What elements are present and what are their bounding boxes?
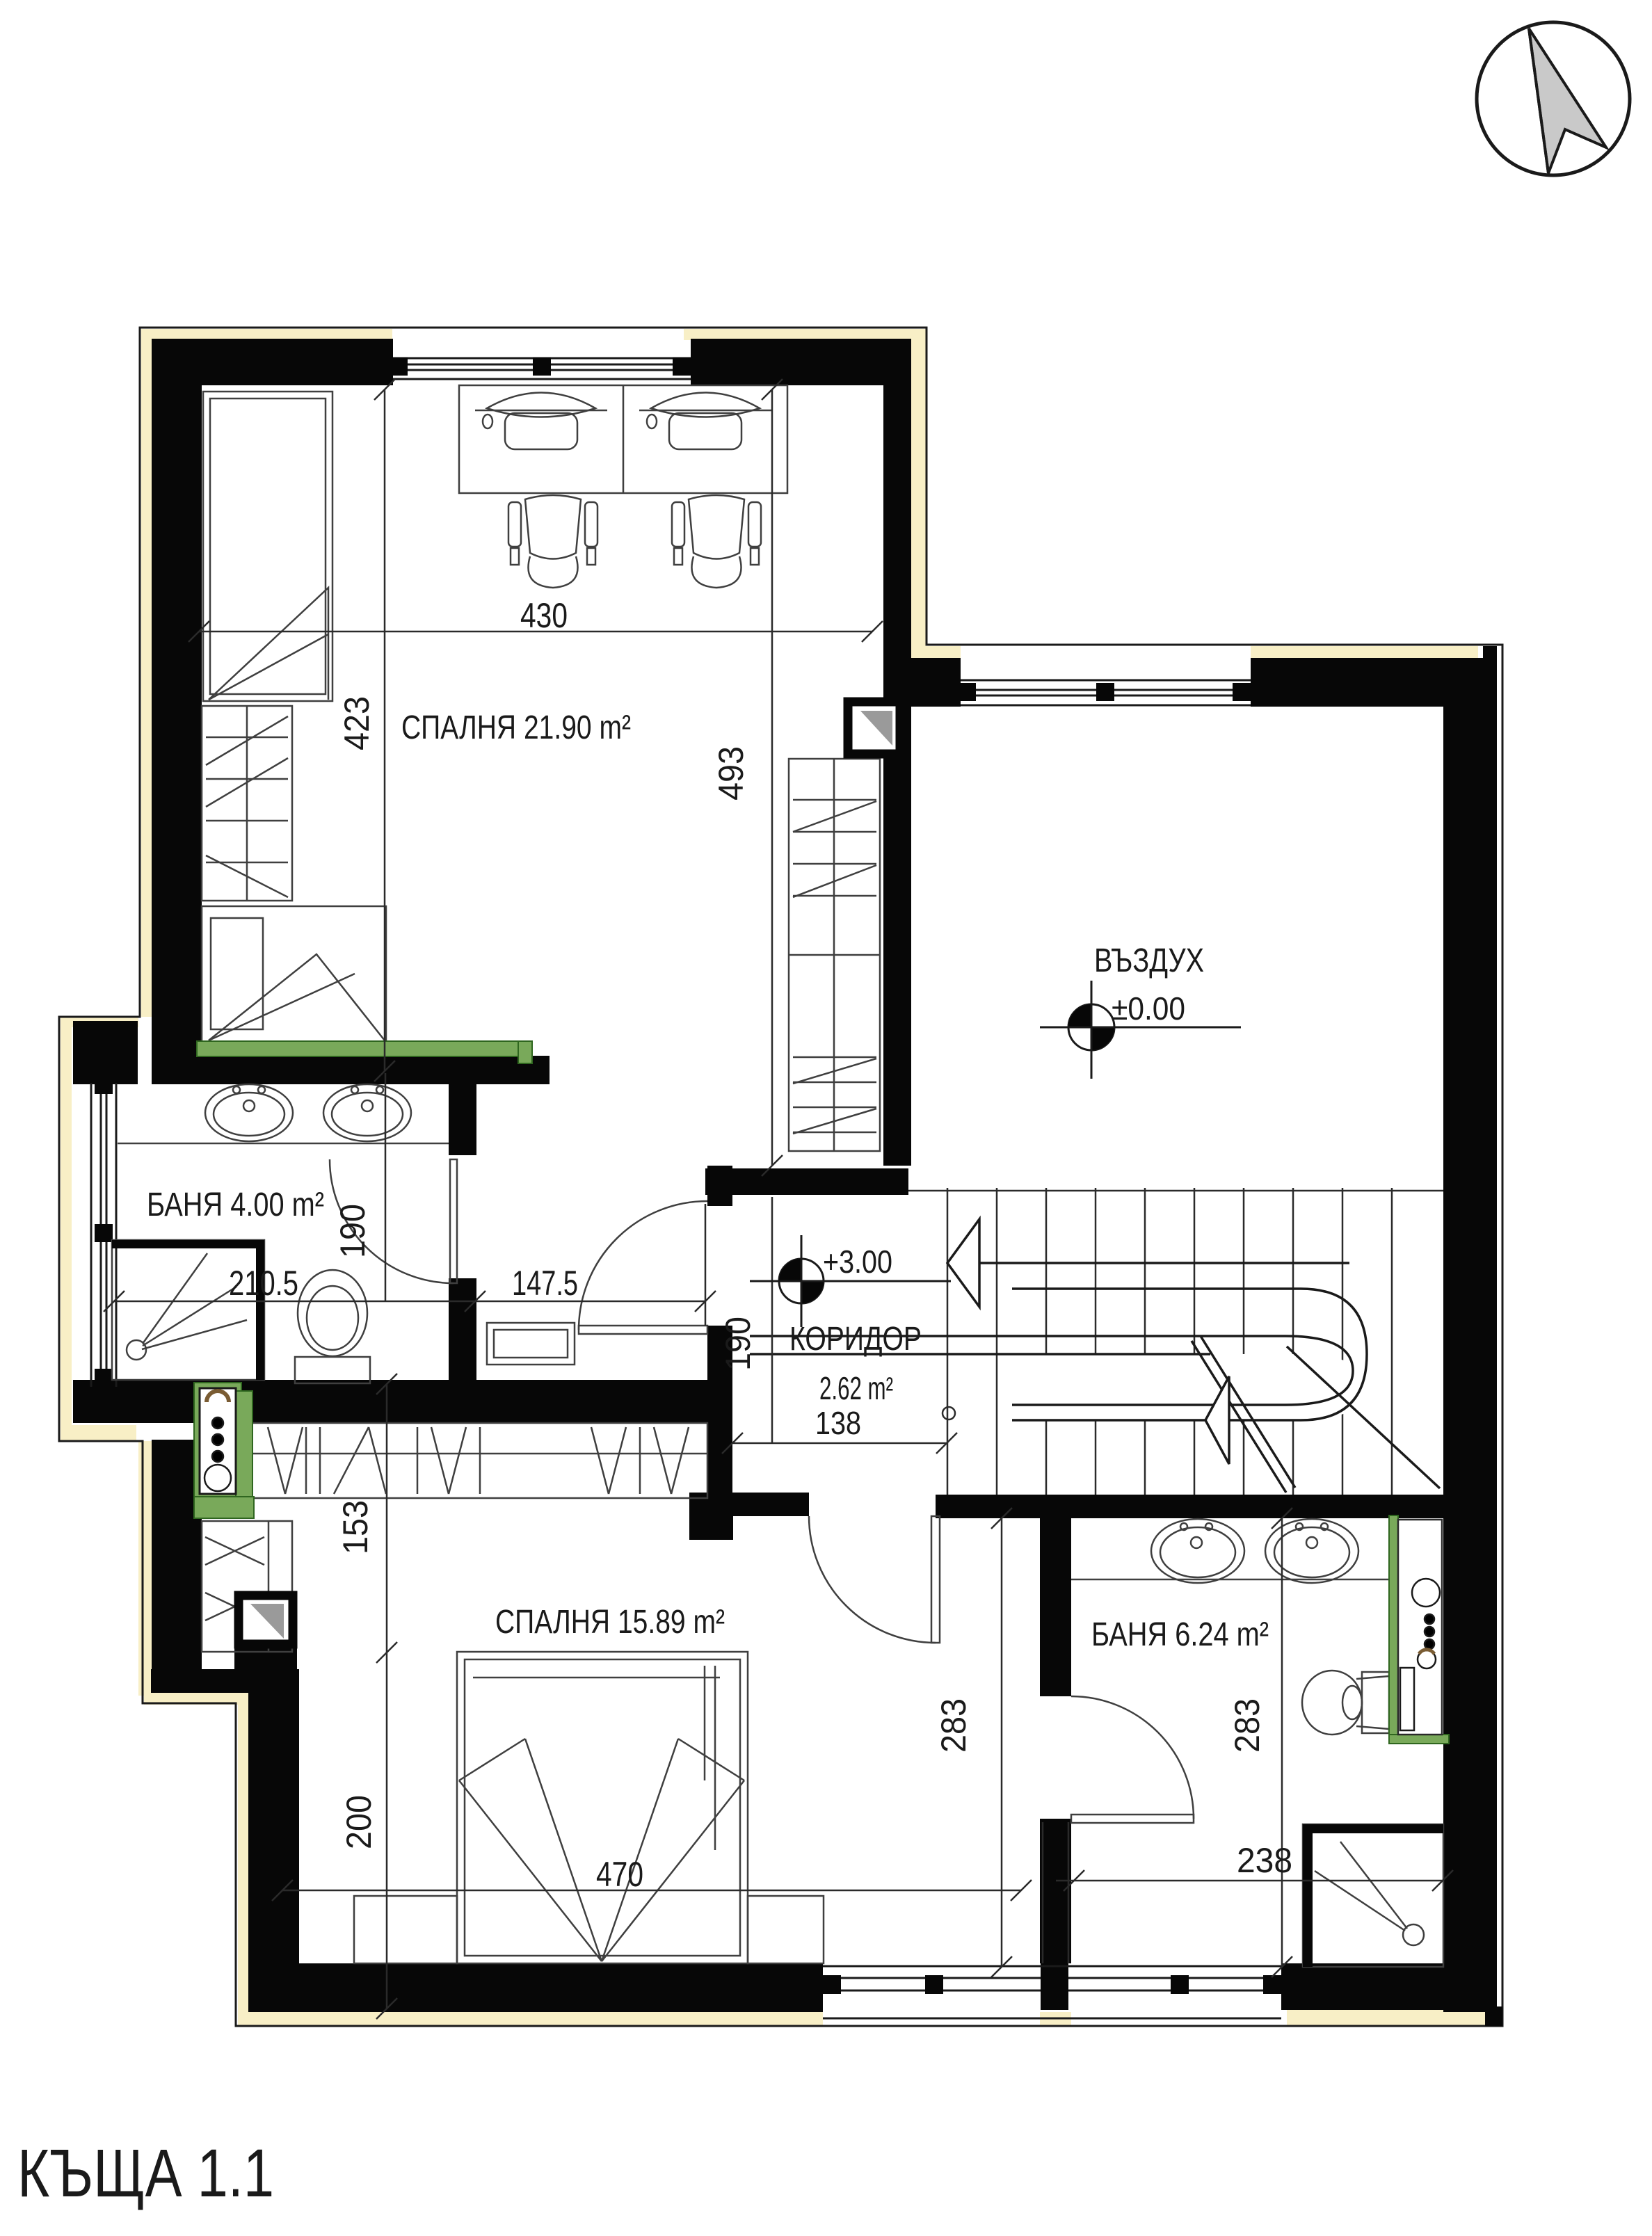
svg-text:190: 190 <box>333 1204 372 1258</box>
svg-text:190: 190 <box>719 1317 757 1371</box>
svg-text:153: 153 <box>336 1500 375 1554</box>
svg-text:КОРИДОР: КОРИДОР <box>789 1321 922 1358</box>
svg-text:238: 238 <box>1237 1841 1292 1880</box>
svg-text:147.5: 147.5 <box>512 1264 578 1303</box>
svg-text:БАНЯ 6.24 m²: БАНЯ 6.24 m² <box>1091 1616 1269 1653</box>
svg-text:±0.00: ±0.00 <box>1112 990 1185 1027</box>
svg-text:493: 493 <box>712 746 751 801</box>
svg-text:БАНЯ 4.00 m²: БАНЯ 4.00 m² <box>147 1187 324 1223</box>
svg-text:СПАЛНЯ 21.90 m²: СПАЛНЯ 21.90 m² <box>401 709 631 746</box>
svg-text:138: 138 <box>815 1405 861 1441</box>
svg-text:СПАЛНЯ 15.89 m²: СПАЛНЯ 15.89 m² <box>495 1604 725 1641</box>
svg-text:+3.00: +3.00 <box>823 1244 892 1280</box>
svg-text:2.62 m²: 2.62 m² <box>819 1370 893 1406</box>
svg-text:470: 470 <box>596 1855 643 1894</box>
svg-text:200: 200 <box>339 1795 378 1849</box>
svg-text:ВЪЗДУХ: ВЪЗДУХ <box>1094 942 1204 979</box>
svg-text:КЪЩА 1.1: КЪЩА 1.1 <box>17 2135 274 2211</box>
svg-text:210.5: 210.5 <box>229 1264 298 1303</box>
svg-text:283: 283 <box>934 1698 973 1753</box>
svg-text:430: 430 <box>520 596 568 635</box>
svg-text:423: 423 <box>337 696 376 750</box>
svg-text:283: 283 <box>1228 1698 1267 1753</box>
